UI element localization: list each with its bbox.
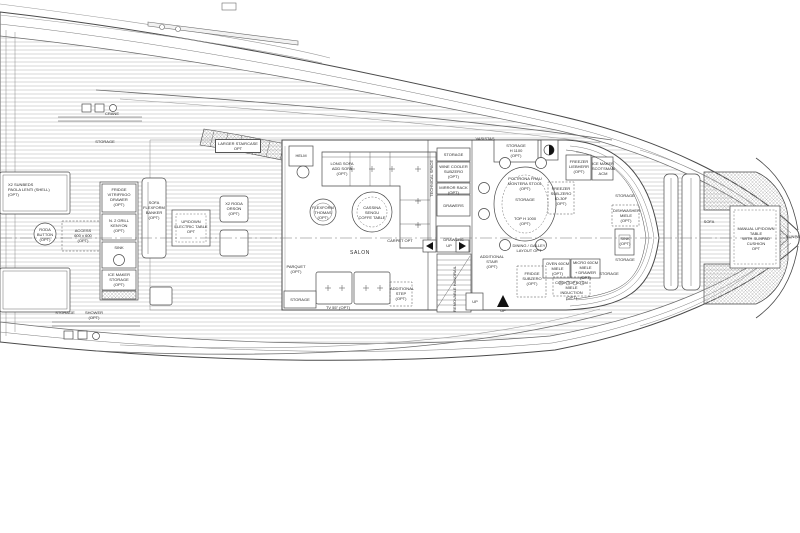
label-sunbeds: X2 SUNBEDS PAOLA LENTI (SHELL) (OPT) [8,182,62,197]
label-freezer-liebherr: FREEZER LIEBHERR (OPT) [567,159,591,174]
label-armchair-thomas: FLEXFORM THOMAS (OPT) [310,205,336,220]
label-storage-h1100: STORAGE H 1100 (OPT) [497,143,535,158]
label-roda-orson: X2 RODA ORSON (OPT) [221,201,247,216]
label-dishwasher: DISHWASHER MIELE (OPT) [613,208,639,223]
label-salon: SALON [346,250,374,256]
label-vasistas: VASISTAS [474,136,496,141]
label-tv: TV 55" (OPT) [324,305,352,310]
label-additional-stair: ADDITIONAL STAIR (OPT) [480,254,504,269]
label-wetbar-sink: SINK [103,245,135,250]
label-parquet: PARQUET (OPT) [284,264,308,274]
label-sofa-banker: SOFA FLEXFORM BANKER (OPT) [143,200,165,220]
label-fwd-storage-2: STORAGE [612,257,638,262]
label-dining-layout: DINING / GALLEY LAYOUT OPT [510,243,548,253]
label-sink-fwd: SINK (OPT) [617,236,633,246]
label-carpet: CARPET OPT [386,238,414,243]
label-technical-space: TECHNICAL SPACE [429,160,434,197]
plan-drawing [0,0,800,533]
label-helm: HELM [289,153,313,158]
label-oven: OVEN 60CM MIELE (OPT) [545,261,570,276]
label-wetbar-fridge: FRIDGE VITRIFRIGO DRAWER (OPT) [103,187,135,207]
label-fwd-storage-1: STORAGE [612,193,638,198]
label-storage-aft-stbd: STORAGE [52,310,78,315]
label-sunpad: SUNPAD [786,234,800,239]
label-wetbar-grill: N. 2 GRILL KENYON (OPT) [103,218,135,233]
label-bow-sofa: SOFA [698,219,720,224]
label-wetbar-icemaker: ICE MAKER STORAGE (OPT) [103,272,135,287]
label-storage-aft-port: STORAGE [92,139,118,144]
label-additional-step: ADDITIONAL STEP (OPT) [390,286,412,301]
label-coffee-table: CASSINA SENGU COFFE TABLE [356,205,388,220]
deck-plan-canvas: CRANE STORAGE STORAGE SHOWER (OPT) X2 SU… [0,0,800,533]
label-larger-staircase: LARGER STAIRCASE OPT [215,139,261,153]
label-wine-cooler: WINE COOLER SUBZERO (OPT) [438,164,469,179]
label-handrail: REMOVABLE HANDRAIL [452,266,457,312]
label-mirror-rack: MIRROR RACK (OPT) [438,185,469,195]
label-shower-aft-stbd: SHOWER (OPT) [80,310,108,320]
label-drawers-1: DRAWERS [438,203,469,208]
label-drawers-2: DRAWERS [438,237,469,242]
label-crane: CRANE [100,111,124,116]
label-montera-stools: POLTRONA FRAU MONTERA STOOL (OPT) [502,176,548,191]
label-fridge-subzero: FRIDGE SUBZERO (OPT) [519,271,545,286]
label-salon-storage: STORAGE [286,297,314,302]
label-cooktop: COOKTOP 60 CM MIELE INDUCTION (OPT) [554,280,589,300]
label-microwave: MICRO 60CM MIELE + DRAWER (OPT) [571,260,600,280]
label-top-h1000: TOP H 1000 (OPT) [506,216,544,226]
label-up-stair: UP [468,299,482,304]
label-up-lower: UP [497,308,509,313]
label-access-hatch: ACCESS 600 x 600 (OPT) [64,228,102,243]
label-up-side: UP [444,243,454,248]
label-fwd-storage-3: STORAGE [598,271,620,276]
label-roda-button: RODA BUTTON (OPT) [33,227,57,242]
label-ice-maker: ICE MAKER SCOTSMAN ACM [592,161,614,176]
label-salon-sofa: LONG SOFA ADD SOFA (OPT) [327,161,357,176]
label-div-storage: STORAGE [438,152,469,157]
label-freezer-subzero: FREEZER SUB-ZERO ID-30F (OPT) [549,186,573,206]
label-updown-table: UP/DOWN ELECTRIC TABLE OPT [174,219,208,234]
label-manual-table: MANUAL UP/DOWN TABLE WITH SUNPAD CUSHION… [734,226,778,251]
label-table-storage: STORAGE [514,197,536,202]
